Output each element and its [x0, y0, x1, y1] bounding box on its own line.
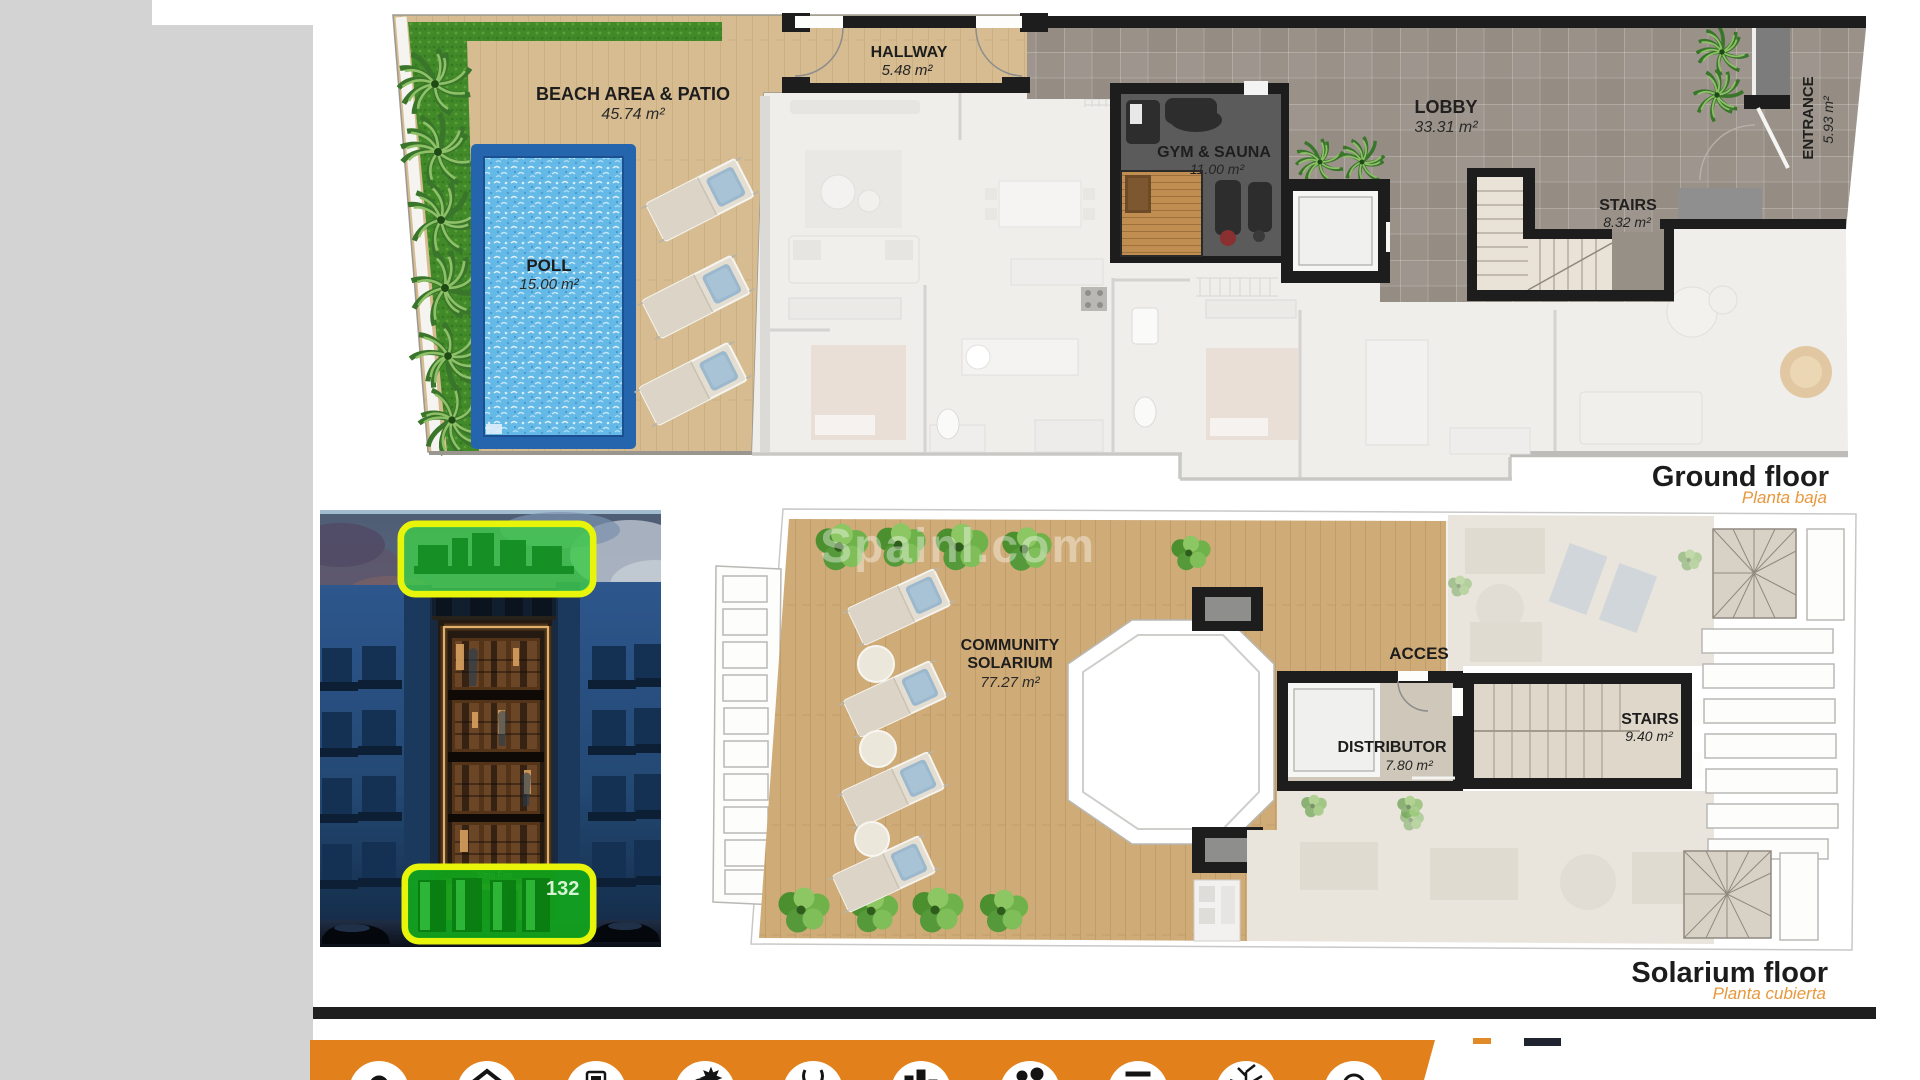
svg-text:STAIRS: STAIRS: [1599, 197, 1657, 214]
svg-text:COMMUNITY: COMMUNITY: [961, 637, 1060, 654]
svg-text:5.48 m²: 5.48 m²: [882, 62, 934, 79]
svg-text:STAIRS: STAIRS: [1621, 711, 1679, 728]
svg-text:77.27 m²: 77.27 m²: [980, 674, 1040, 691]
svg-text:GYM & SAUNA: GYM & SAUNA: [1157, 144, 1271, 161]
svg-text:SOLARIUM: SOLARIUM: [967, 655, 1052, 672]
svg-text:9.40 m²: 9.40 m²: [1625, 728, 1674, 744]
svg-text:HALLWAY: HALLWAY: [871, 44, 948, 61]
svg-text:LOBBY: LOBBY: [1415, 97, 1478, 117]
svg-text:5.93 m²: 5.93 m²: [1820, 95, 1836, 144]
svg-text:DISTRIBUTOR: DISTRIBUTOR: [1337, 739, 1446, 756]
svg-text:132: 132: [546, 878, 579, 900]
svg-text:7.80 m²: 7.80 m²: [1385, 757, 1434, 773]
svg-text:8.32 m²: 8.32 m²: [1603, 214, 1652, 230]
svg-text:Spainl.com: Spainl.com: [820, 520, 1096, 573]
svg-text:33.31 m²: 33.31 m²: [1414, 119, 1478, 136]
svg-text:45.74 m²: 45.74 m²: [601, 106, 665, 123]
svg-text:ENTRANCE: ENTRANCE: [1800, 76, 1817, 159]
svg-text:11.00 m²: 11.00 m²: [1190, 161, 1246, 177]
svg-text:POLL: POLL: [526, 256, 571, 275]
svg-text:ACCES: ACCES: [1389, 644, 1449, 663]
svg-text:15.00 m²: 15.00 m²: [519, 276, 579, 293]
svg-text:BEACH AREA & PATIO: BEACH AREA & PATIO: [536, 84, 730, 104]
svg-text:Planta baja: Planta baja: [1742, 488, 1827, 507]
svg-text:Planta cubierta: Planta cubierta: [1713, 984, 1826, 1003]
